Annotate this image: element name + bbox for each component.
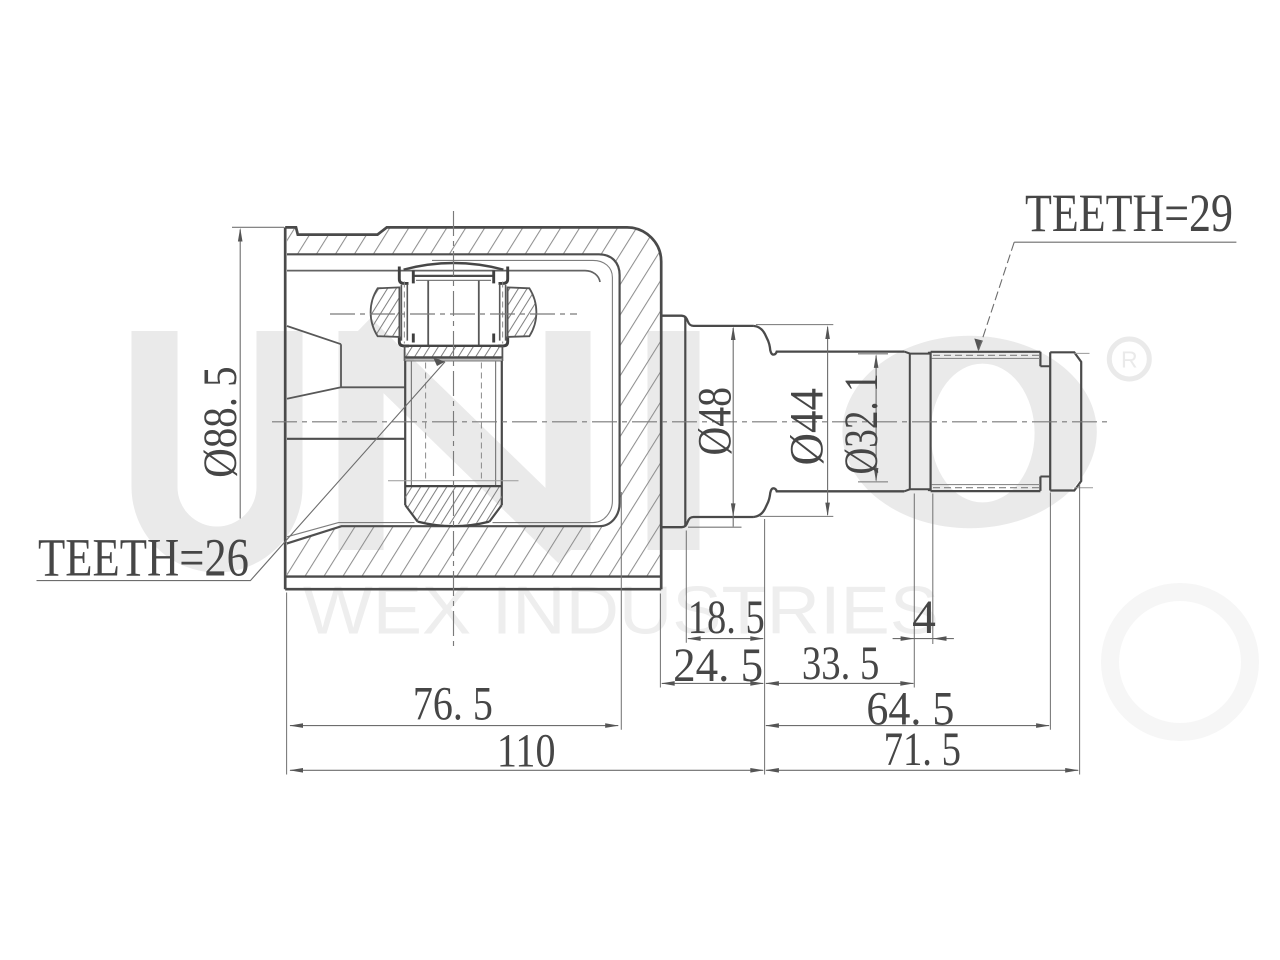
svg-text:Ø32. 1: Ø32. 1 xyxy=(836,374,888,475)
svg-text:TEETH=29: TEETH=29 xyxy=(1025,182,1233,243)
svg-text:Ø48: Ø48 xyxy=(689,387,741,456)
svg-text:110: 110 xyxy=(497,726,556,778)
svg-text:71. 5: 71. 5 xyxy=(884,724,961,776)
svg-text:18. 5: 18. 5 xyxy=(688,592,765,644)
svg-text:33. 5: 33. 5 xyxy=(802,638,879,690)
svg-text:4: 4 xyxy=(912,592,936,644)
svg-text:Ø44: Ø44 xyxy=(781,388,833,466)
svg-text:TEETH=26: TEETH=26 xyxy=(38,527,249,588)
svg-text:76. 5: 76. 5 xyxy=(413,679,493,731)
svg-text:24. 5: 24. 5 xyxy=(673,640,763,692)
svg-text:R: R xyxy=(1121,347,1138,373)
svg-text:Ø88. 5: Ø88. 5 xyxy=(195,366,247,477)
